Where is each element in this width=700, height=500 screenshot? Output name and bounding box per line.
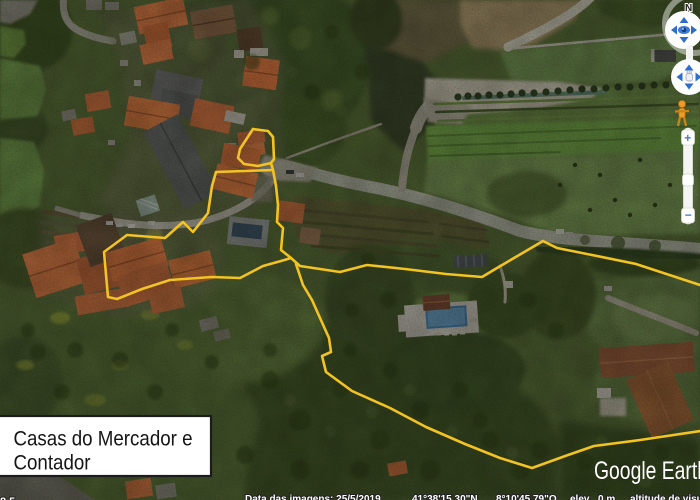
- svg-text:8 5: 8 5: [0, 496, 15, 500]
- svg-text:41°38'15.30"N: 41°38'15.30"N: [412, 494, 478, 500]
- svg-text:Casas do Mercador e: Casas do Mercador e: [14, 428, 193, 451]
- svg-text:+: +: [684, 131, 691, 145]
- svg-text:altitude de visualiza: altitude de visualiza: [630, 494, 700, 500]
- svg-text:Data das imagens: 25/5/2019: Data das imagens: 25/5/2019: [245, 494, 381, 500]
- svg-text:elev: elev: [570, 494, 590, 500]
- svg-text:8°10'45.79"O: 8°10'45.79"O: [496, 494, 557, 500]
- svg-text:0 m: 0 m: [598, 494, 615, 500]
- svg-text:−: −: [685, 208, 692, 222]
- svg-text:Contador: Contador: [14, 452, 91, 475]
- svg-text:Google Earth: Google Earth: [594, 457, 700, 485]
